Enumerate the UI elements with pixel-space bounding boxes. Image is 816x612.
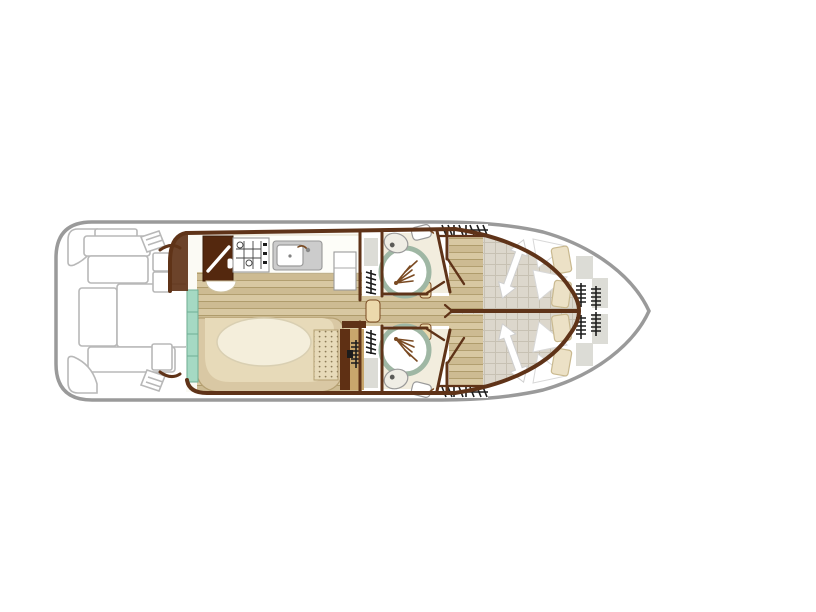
floor-plan-canvas	[0, 0, 816, 612]
sink-unit	[273, 241, 322, 270]
deck-bench-top	[84, 236, 150, 256]
deck-pad-center	[117, 284, 188, 347]
fridge	[334, 252, 356, 290]
bow-shelf-4	[576, 343, 593, 366]
dinette-table	[217, 318, 311, 366]
shelf-port	[364, 238, 378, 266]
cool-box-cabinet	[203, 236, 233, 281]
deck-side-seat-3	[152, 344, 172, 370]
dinette-front-wall	[342, 321, 366, 328]
sideboard-teal-door	[187, 290, 198, 382]
deck-side-seat-2	[153, 272, 170, 292]
dinette	[196, 318, 364, 392]
hob-4-burner	[233, 238, 269, 272]
dinette-cabinet	[340, 329, 350, 390]
bow-shelf-1	[576, 256, 593, 279]
step-area	[314, 330, 338, 380]
shelf-starboard	[364, 358, 378, 388]
corridor-sliding-door	[366, 300, 380, 322]
boat-floor-plan	[0, 0, 816, 612]
deck-side-seat-1	[153, 253, 170, 271]
deck-pad-left	[79, 288, 117, 346]
deck-pad-top	[88, 256, 148, 283]
